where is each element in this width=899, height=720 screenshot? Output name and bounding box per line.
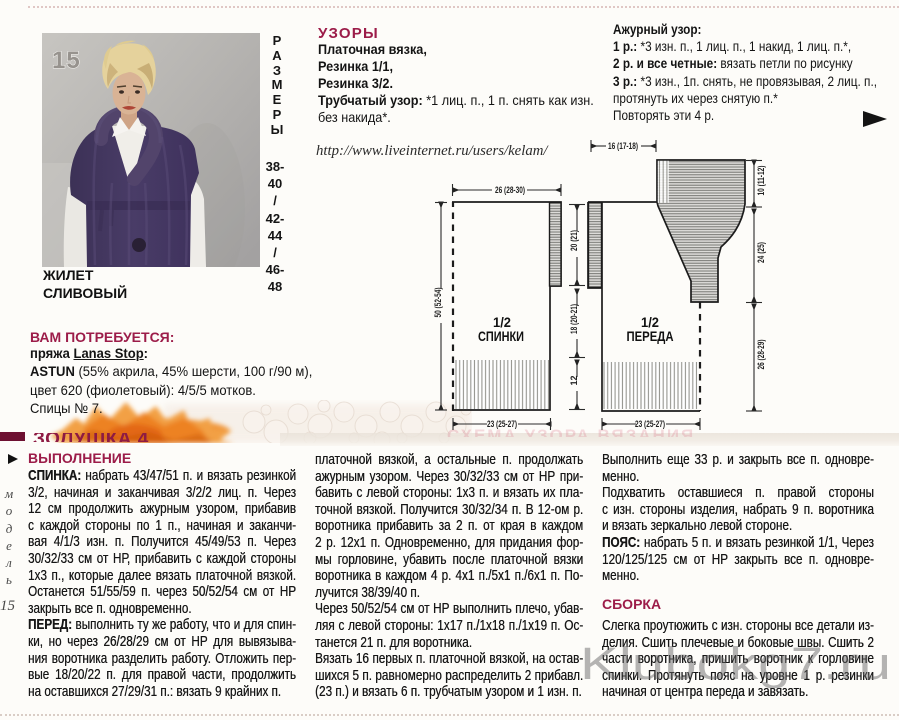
svg-text:26 (28-30): 26 (28-30) <box>495 185 525 196</box>
svg-text:23 (25-27): 23 (25-27) <box>487 419 517 430</box>
svg-text:18 (20-21): 18 (20-21) <box>569 304 580 334</box>
svg-text:СПИНКИ: СПИНКИ <box>478 328 524 344</box>
svg-text:26 (28-29): 26 (28-29) <box>756 340 767 370</box>
svg-text:12: 12 <box>569 376 580 386</box>
svg-text:ПЕРЕДА: ПЕРЕДА <box>627 328 674 344</box>
svg-text:23 (25-27): 23 (25-27) <box>635 419 665 430</box>
svg-text:15: 15 <box>52 47 81 74</box>
svg-text:10 (11-12): 10 (11-12) <box>756 166 767 196</box>
svg-text:24 (25): 24 (25) <box>756 242 767 263</box>
svg-text:Klubokg7.ru: Klubokg7.ru <box>580 638 891 688</box>
svg-text:20 (21): 20 (21) <box>569 230 580 251</box>
svg-text:50 (52-54): 50 (52-54) <box>433 288 444 318</box>
svg-text:16 (17-18): 16 (17-18) <box>608 141 638 152</box>
